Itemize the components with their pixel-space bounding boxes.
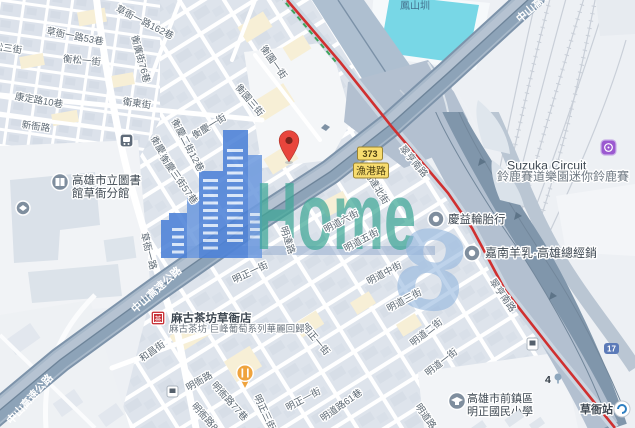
svg-text:鳳山圳: 鳳山圳 <box>400 0 430 12</box>
svg-text:4: 4 <box>545 374 551 386</box>
svg-text:高雄市立圖書: 高雄市立圖書 <box>72 173 141 187</box>
svg-text:麻古茶坊 巨峰葡萄系列華麗回歸: 麻古茶坊 巨峰葡萄系列華麗回歸 <box>169 323 305 335</box>
svg-text:17: 17 <box>607 345 616 354</box>
svg-text:茶: 茶 <box>155 315 162 324</box>
svg-text:Home: Home <box>256 162 416 270</box>
svg-text:麻古茶坊草衙店: 麻古茶坊草衙店 <box>170 311 252 325</box>
svg-text:鈴鹿賽道樂園迷你鈴鹿賽: 鈴鹿賽道樂園迷你鈴鹿賽 <box>497 169 629 184</box>
svg-text:373: 373 <box>362 149 377 159</box>
svg-text:草衙站: 草衙站 <box>580 402 613 416</box>
svg-text:嘉南羊乳·高雄總經銷: 嘉南羊乳·高雄總經銷 <box>485 245 597 260</box>
svg-text:慶益輪胎行: 慶益輪胎行 <box>448 212 506 226</box>
svg-text:漁港路: 漁港路 <box>356 165 386 178</box>
svg-text:高雄市前鎮區: 高雄市前鎮區 <box>467 391 533 405</box>
svg-text:館草衙分館: 館草衙分館 <box>72 186 130 200</box>
